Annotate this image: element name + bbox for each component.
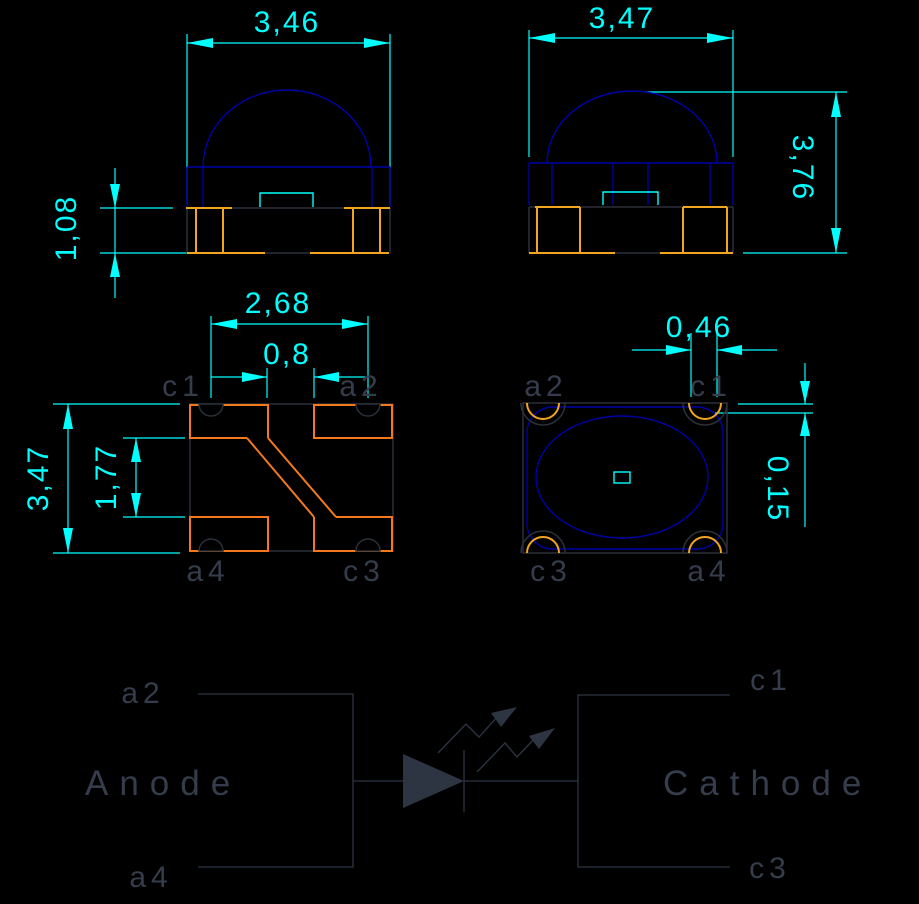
dimension-value: 3,76	[786, 135, 819, 201]
schematic-pin-c3: c3	[749, 852, 791, 885]
pin-label-a4: a4	[186, 555, 229, 588]
pin-label-c1: c1	[162, 370, 204, 403]
led-datasheet-drawing: 3,46 1,08	[0, 0, 919, 904]
dimension-value: 2,68	[245, 287, 311, 320]
dimension-value: 1,08	[50, 195, 83, 261]
anode-label: Anode	[85, 764, 241, 803]
pin-label-a2: a2	[524, 370, 567, 403]
pin-label-c3: c3	[343, 555, 385, 588]
schematic-pin-c1: c1	[750, 664, 792, 697]
pin-label-a2: a2	[339, 370, 382, 403]
pin-label-c1: c1	[690, 370, 732, 403]
dimension-value: 3,47	[22, 445, 55, 511]
dimension-value: 0,46	[666, 311, 732, 344]
schematic-pin-a4: a4	[129, 861, 172, 894]
pin-label-a4: a4	[687, 555, 730, 588]
dimension-value: 1,77	[90, 444, 123, 510]
technical-drawing-canvas: 3,46 1,08	[0, 0, 919, 904]
schematic-pin-a2: a2	[121, 677, 164, 710]
dimension-value: 3,47	[589, 2, 655, 35]
dimension-value: 3,46	[254, 6, 320, 39]
dimension-value: 0,8	[263, 338, 311, 371]
pin-label-c3: c3	[530, 555, 572, 588]
cathode-label: Cathode	[663, 764, 872, 803]
dimension-value: 0,15	[761, 456, 794, 522]
